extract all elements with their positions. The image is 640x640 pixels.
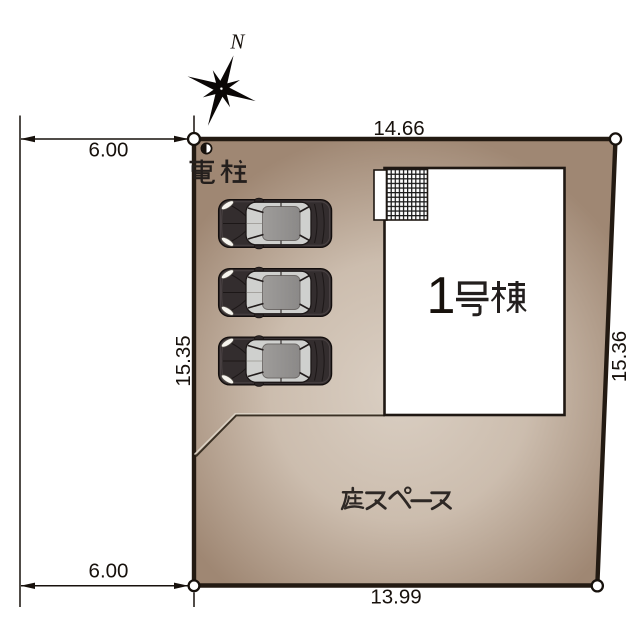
svg-text:1: 1	[427, 267, 456, 325]
svg-text:6.00: 6.00	[89, 560, 129, 583]
svg-text:15.36: 15.36	[608, 331, 631, 382]
svg-text:15.35: 15.35	[172, 335, 195, 386]
svg-text:N: N	[229, 30, 245, 54]
svg-text:6.00: 6.00	[89, 139, 129, 162]
svg-text:14.66: 14.66	[373, 117, 424, 140]
svg-text:13.99: 13.99	[370, 586, 421, 609]
